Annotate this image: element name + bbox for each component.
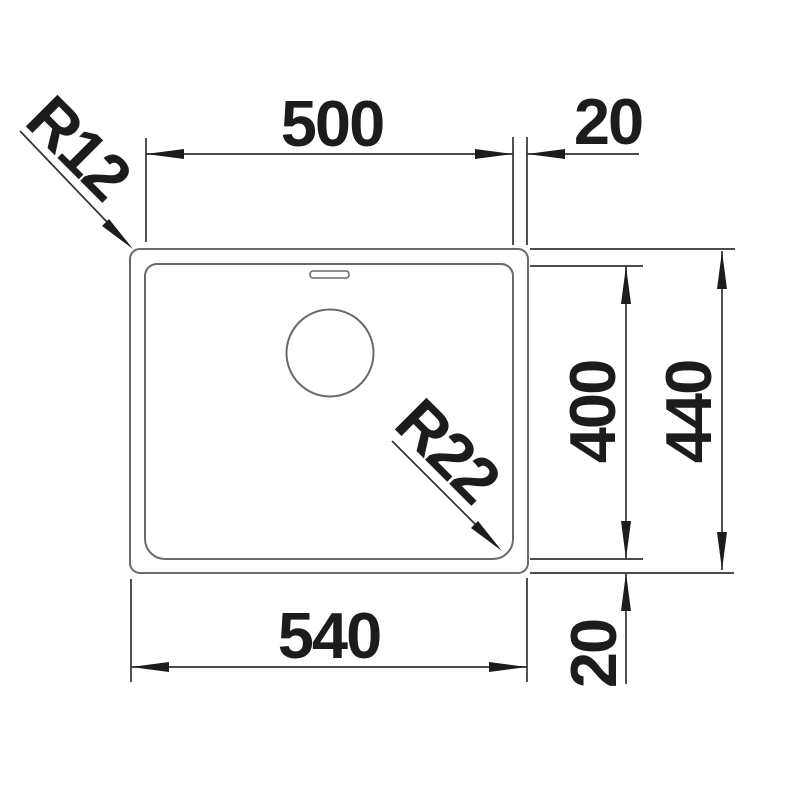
svg-text:20: 20: [557, 620, 630, 688]
svg-text:440: 440: [652, 361, 725, 463]
svg-text:500: 500: [281, 87, 383, 160]
svg-text:400: 400: [556, 361, 629, 463]
svg-text:20: 20: [574, 85, 642, 158]
svg-text:540: 540: [278, 599, 380, 672]
